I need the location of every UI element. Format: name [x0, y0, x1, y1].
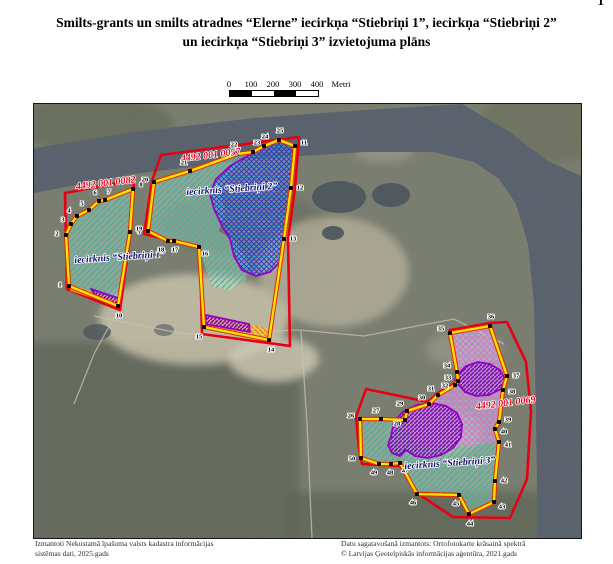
vertex-number-label: 34: [444, 363, 451, 370]
vertex-marker: [453, 383, 457, 387]
vertex-marker: [493, 479, 497, 483]
vertex-number-label: 42: [501, 478, 508, 485]
vertex-marker: [457, 493, 461, 497]
vertex-number-label: 50: [349, 456, 356, 463]
vertex-marker: [493, 427, 497, 431]
vertex-number-label: 11: [301, 140, 307, 147]
vertex-number-label: 33: [445, 375, 452, 382]
vertex-marker: [389, 462, 393, 466]
vertex-marker: [197, 245, 201, 249]
vertex-marker: [448, 331, 452, 335]
scale-bar-graphic: [229, 90, 319, 97]
vertex-marker: [97, 199, 101, 203]
vertex-marker: [103, 198, 107, 202]
vertex-number-label: 40: [501, 429, 508, 436]
vertex-marker: [202, 325, 206, 329]
scale-segment: [274, 91, 296, 96]
vertex-marker: [251, 150, 255, 154]
vertex-marker: [131, 187, 135, 191]
vertex-number-label: 31: [428, 386, 435, 393]
vertex-number-label: 44: [467, 521, 474, 528]
vertex-number-label: 43: [499, 504, 506, 511]
plan-document: 1 Smilts-grants un smilts atradnes “Eler…: [0, 0, 613, 564]
vertex-marker: [497, 440, 501, 444]
vertex-marker: [377, 462, 381, 466]
vertex-number-label: 41: [505, 442, 512, 449]
vertex-marker: [436, 393, 440, 397]
credits-left: Izmantoti Nekustamā īpašuma valsts kadas…: [35, 539, 214, 558]
vertex-marker: [146, 229, 150, 233]
vertex-number-label: 38: [509, 389, 516, 396]
vertex-number-label: 27: [373, 408, 380, 415]
vertex-marker: [87, 208, 91, 212]
vertex-marker: [456, 379, 460, 383]
vertex-number-label: 49: [371, 470, 378, 477]
vertex-marker: [501, 388, 505, 392]
vertex-number-label: 22: [231, 142, 238, 149]
vertex-marker: [358, 417, 362, 421]
vertex-number-label: 30: [419, 395, 426, 402]
vertex-number-label: 16: [202, 251, 209, 258]
scale-unit: Metri: [332, 79, 351, 89]
vertex-number-label: 18: [158, 247, 165, 254]
vertex-marker: [488, 324, 492, 328]
vertex-marker: [293, 144, 297, 148]
orthophoto-map: 4492 001 00824492 001 00574492 001 00691…: [34, 104, 581, 538]
vertex-number-label: 46: [410, 500, 417, 507]
vertex-marker: [455, 370, 459, 374]
vertex-number-label: 45: [453, 501, 460, 508]
vertex-marker: [282, 237, 286, 241]
scale-bar-ticks: 0 100 200 300 400 Metri: [229, 79, 369, 89]
vertex-marker: [75, 214, 79, 218]
vertex-number-label: 2: [55, 231, 58, 238]
vertex-number-label: 12: [297, 185, 304, 192]
credits-left-line2: sistēmas dati, 2025.gads: [35, 549, 214, 559]
vertex-number-label: 28: [394, 421, 401, 428]
vertex-number-label: 26: [348, 413, 355, 420]
vertex-number-label: 35: [438, 326, 445, 333]
vertex-number-label: 21: [181, 160, 188, 167]
scale-bar: 0 100 200 300 400 Metri: [229, 79, 369, 97]
vertex-number-label: 39: [505, 417, 512, 424]
credits-right-line2: © Latvijas Ģeotelpiskās informācijas aģe…: [341, 549, 526, 559]
vertex-marker: [116, 304, 120, 308]
scale-tick-300: 300: [289, 79, 302, 89]
vertex-number-label: 37: [513, 373, 520, 380]
scale-tick-100: 100: [245, 79, 258, 89]
scale-segment: [296, 91, 318, 96]
vertex-marker: [262, 144, 266, 148]
page-number: 1: [598, 0, 605, 9]
vertex-marker: [64, 233, 68, 237]
vertex-marker: [152, 180, 156, 184]
vertex-marker: [398, 461, 402, 465]
title-line-1: Smilts-grants un smilts atradnes “Elerne…: [0, 13, 613, 32]
orthophoto-background: [34, 104, 581, 538]
vertex-number-label: 20: [142, 177, 149, 184]
vertex-marker: [69, 222, 73, 226]
vertex-marker: [188, 169, 192, 173]
vertex-number-label: 32: [442, 383, 449, 390]
vertex-marker: [379, 417, 383, 421]
vertex-number-label: 36: [488, 314, 495, 321]
vertex-number-label: 15: [196, 334, 203, 341]
credits-left-line1: Izmantoti Nekustamā īpašuma valsts kadas…: [35, 539, 214, 549]
vertex-marker: [405, 409, 409, 413]
vertex-marker: [67, 284, 71, 288]
vertex-marker: [492, 500, 496, 504]
vertex-number-label: 29: [397, 401, 404, 408]
vertex-marker: [128, 230, 132, 234]
vertex-marker: [403, 418, 407, 422]
vertex-marker: [166, 239, 170, 243]
map-canvas: 4492 001 00824492 001 00574492 001 00691…: [33, 103, 582, 539]
vertex-number-label: 13: [290, 236, 297, 243]
scale-segment: [230, 91, 252, 96]
vertex-number-label: 17: [172, 247, 179, 254]
title-line-2: un iecirkņa “Stiebriņi 3” izvietojuma pl…: [0, 32, 613, 51]
vertex-number-label: 48: [387, 470, 394, 477]
vertex-marker: [505, 374, 509, 378]
vertex-number-label: 1: [58, 282, 61, 289]
vertex-marker: [415, 492, 419, 496]
vertex-number-label: 24: [262, 134, 269, 141]
vertex-number-label: 10: [116, 313, 123, 320]
vertex-number-label: 19: [136, 226, 143, 233]
vertex-marker: [172, 239, 176, 243]
vertex-marker: [277, 138, 281, 142]
credits-right: Datu sagatavošanā izmantots: Ortofotokar…: [341, 539, 526, 558]
vertex-number-label: 23: [254, 140, 261, 147]
vertex-marker: [267, 338, 271, 342]
vertex-marker: [467, 512, 471, 516]
scale-tick-200: 200: [267, 79, 280, 89]
vertex-marker: [427, 402, 431, 406]
scale-tick-0: 0: [227, 79, 231, 89]
vertex-number-label: 25: [277, 128, 284, 135]
credits-right-line1: Datu sagatavošanā izmantots: Ortofotokar…: [341, 539, 526, 549]
vertex-number-label: 14: [268, 347, 275, 354]
vertex-marker: [497, 420, 501, 424]
vertex-marker: [359, 456, 363, 460]
scale-tick-400: 400: [311, 79, 324, 89]
scale-segment: [252, 91, 274, 96]
vertex-marker: [289, 186, 293, 190]
page-title: Smilts-grants un smilts atradnes “Elerne…: [0, 13, 613, 51]
